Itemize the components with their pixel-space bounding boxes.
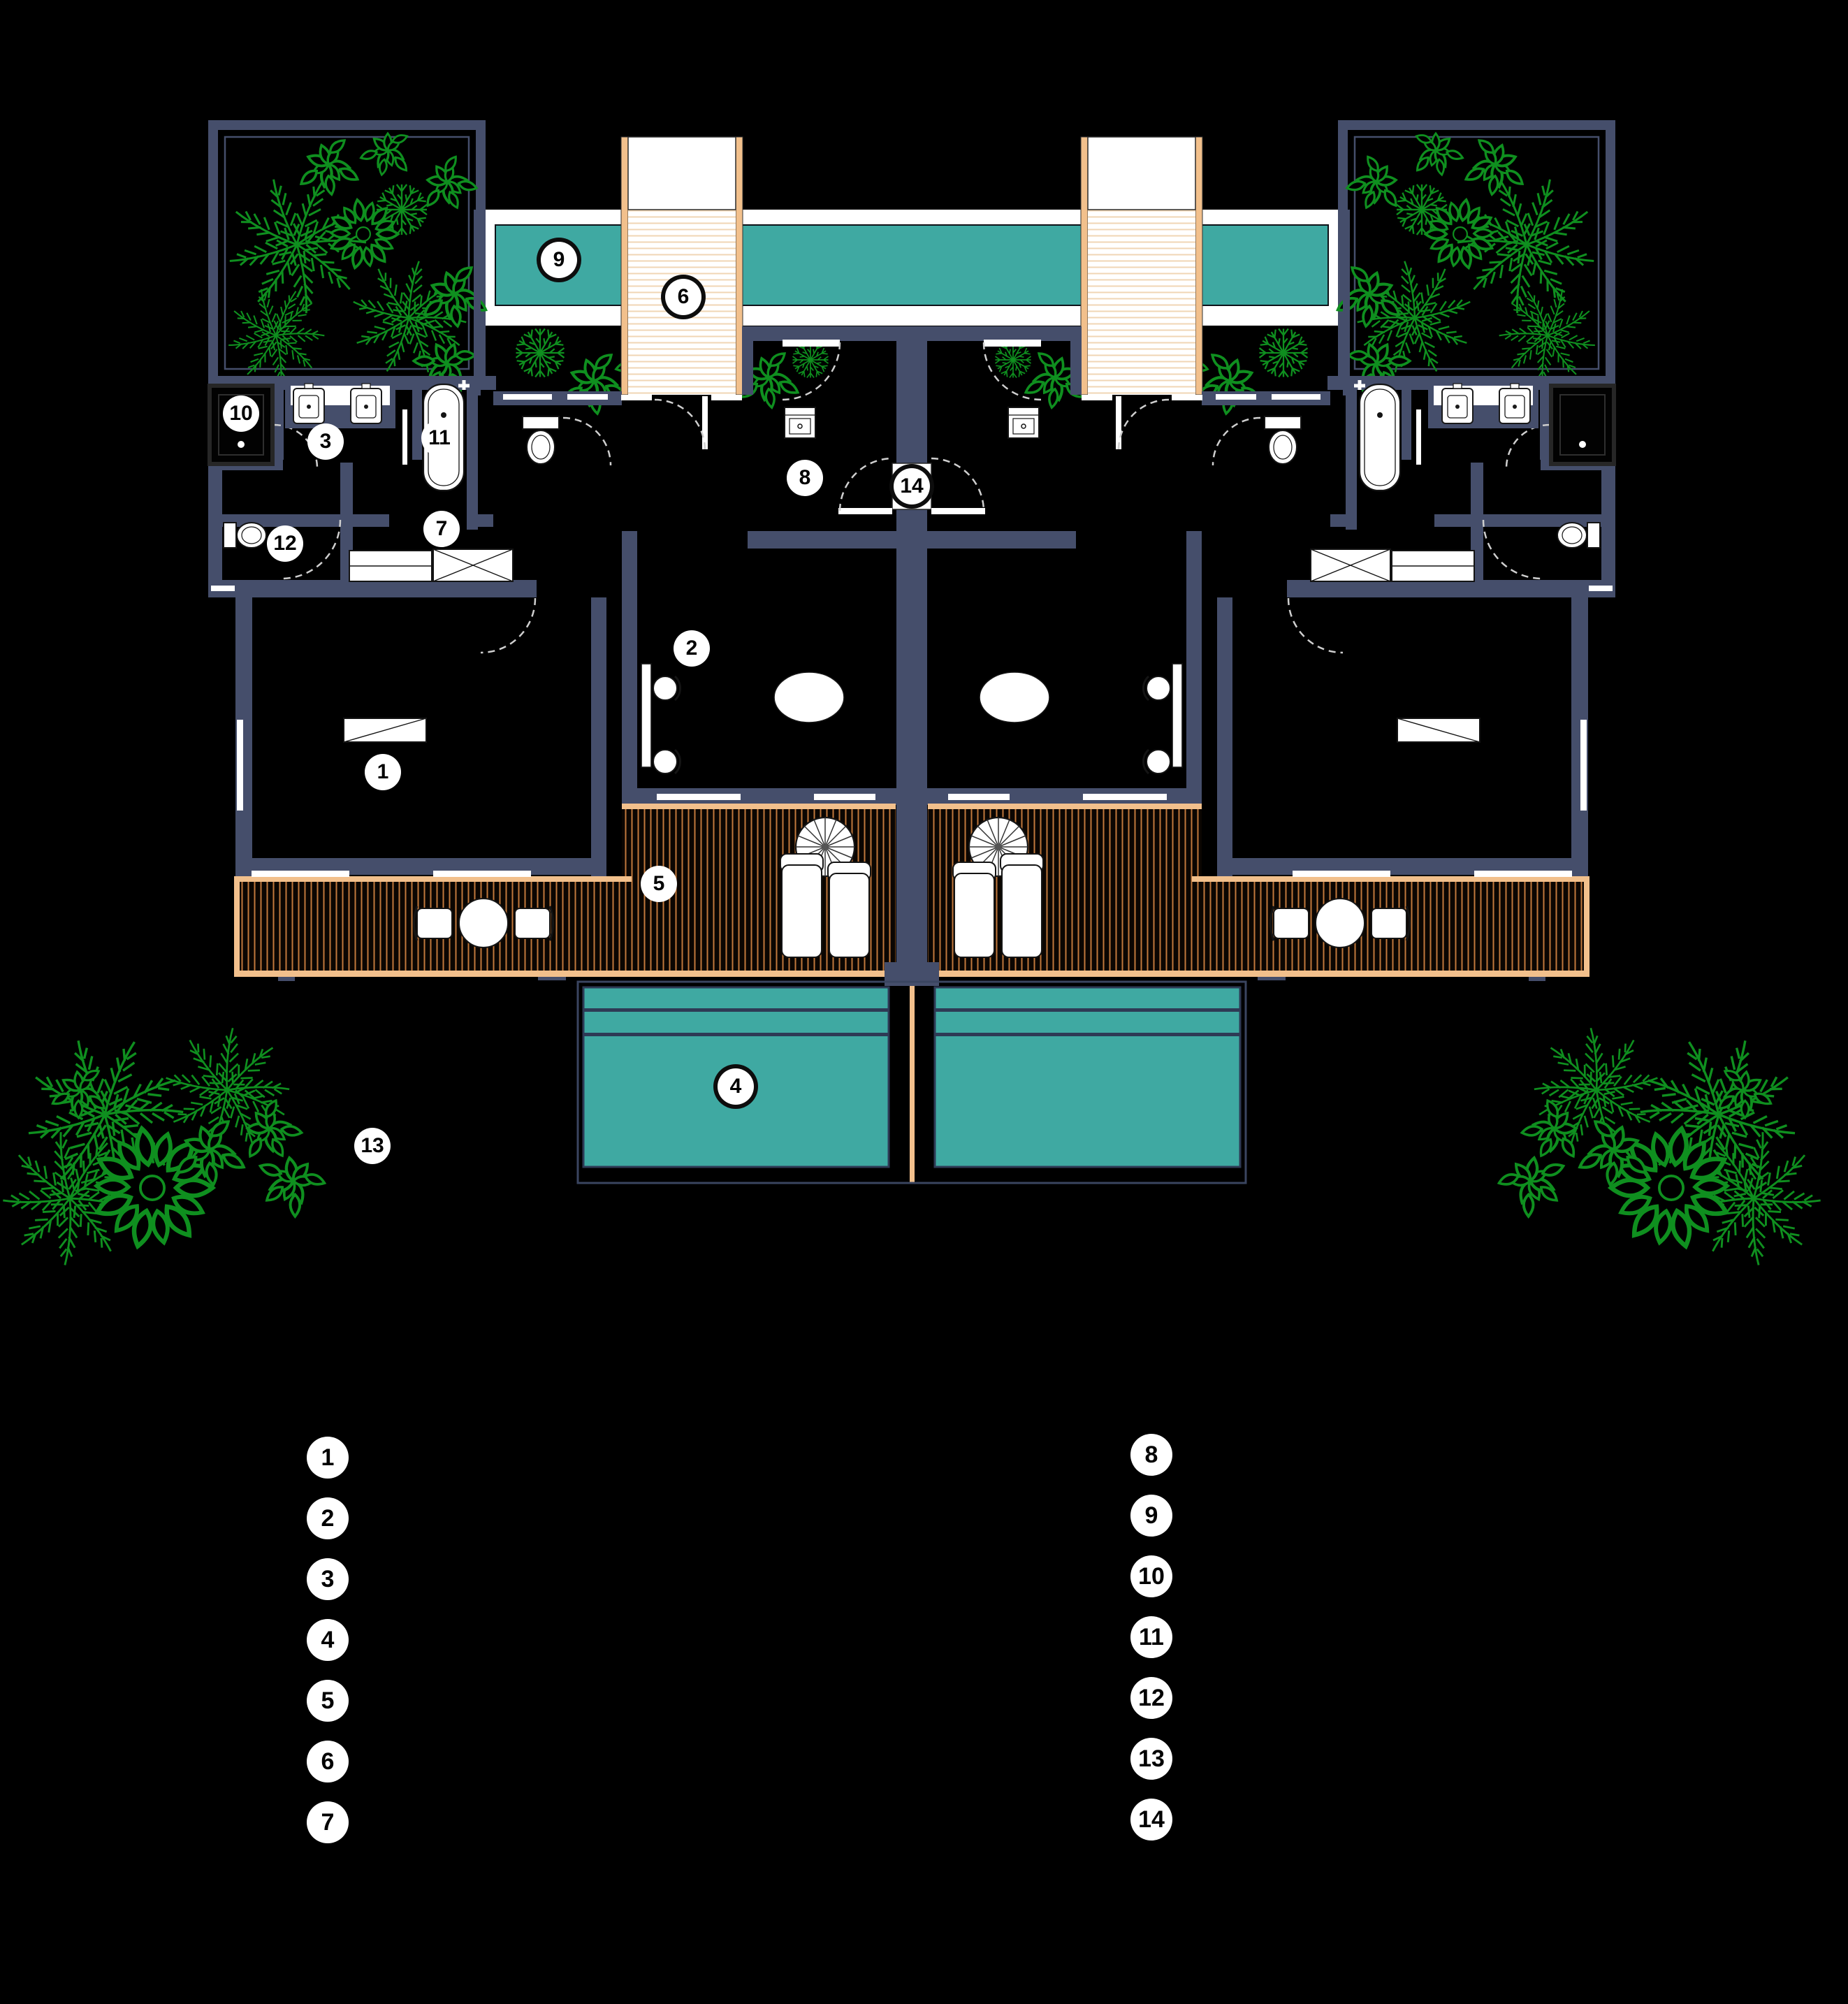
plan-marker-11: 11 bbox=[421, 420, 458, 456]
legend-item-3: 3 bbox=[307, 1558, 349, 1600]
legend-item-6: 6 bbox=[307, 1741, 349, 1782]
floor-plan-drawing bbox=[0, 0, 1848, 2004]
legend-item-8: 8 bbox=[1130, 1434, 1172, 1476]
legend-item-9: 9 bbox=[1130, 1495, 1172, 1537]
plan-marker-7: 7 bbox=[423, 511, 460, 547]
legend-item-13: 13 bbox=[1130, 1738, 1172, 1780]
plan-marker-6: 6 bbox=[665, 279, 701, 315]
plan-marker-14: 14 bbox=[894, 468, 930, 504]
legend-item-1: 1 bbox=[307, 1437, 349, 1479]
plan-marker-9: 9 bbox=[541, 242, 577, 278]
plan-marker-10: 10 bbox=[223, 395, 259, 432]
plan-marker-3: 3 bbox=[307, 423, 344, 460]
legend-item-5: 5 bbox=[307, 1680, 349, 1722]
legend-item-11: 11 bbox=[1130, 1616, 1172, 1658]
plan-marker-8: 8 bbox=[787, 460, 823, 496]
plan-marker-13: 13 bbox=[354, 1128, 391, 1164]
plan-marker-4: 4 bbox=[718, 1068, 754, 1105]
floor-plan-canvas: 1234567891011121314 1234567891011121314 bbox=[0, 0, 1848, 2004]
legend-item-4: 4 bbox=[307, 1619, 349, 1661]
plan-marker-2: 2 bbox=[674, 630, 710, 667]
legend-item-10: 10 bbox=[1130, 1555, 1172, 1597]
legend-item-2: 2 bbox=[307, 1497, 349, 1539]
pool-divider bbox=[910, 986, 915, 1183]
plan-marker-1: 1 bbox=[365, 754, 401, 790]
legend-item-7: 7 bbox=[307, 1801, 349, 1843]
legend-item-12: 12 bbox=[1130, 1677, 1172, 1719]
lap-pool bbox=[480, 210, 1344, 326]
plan-marker-12: 12 bbox=[267, 525, 303, 562]
plan-marker-5: 5 bbox=[641, 866, 677, 902]
legend-item-14: 14 bbox=[1130, 1799, 1172, 1840]
